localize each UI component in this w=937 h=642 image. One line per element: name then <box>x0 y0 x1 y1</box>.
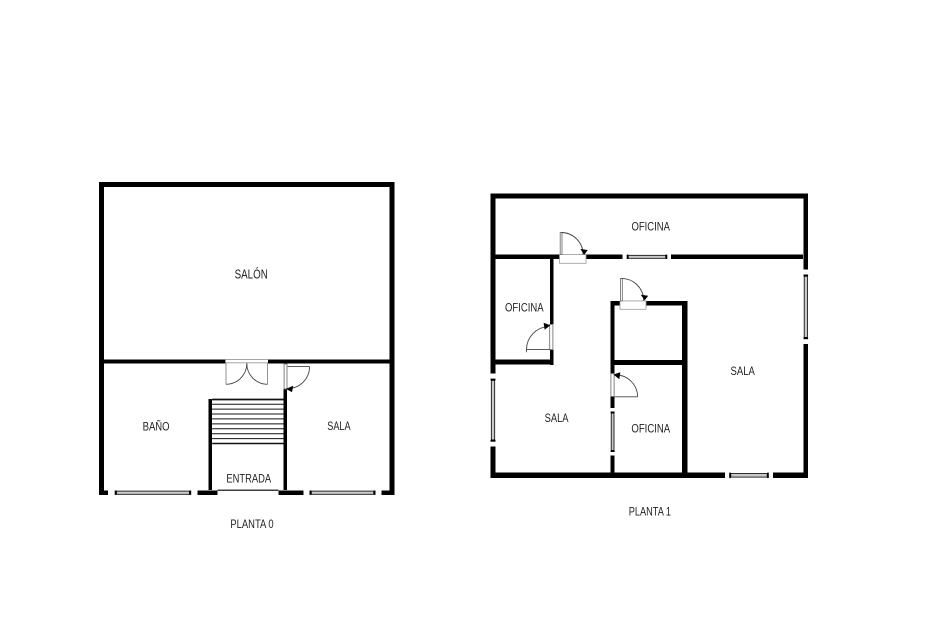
svg-text:OFICINA: OFICINA <box>632 219 670 233</box>
svg-text:SALÓN: SALÓN <box>235 266 268 281</box>
svg-text:SALA: SALA <box>327 419 350 433</box>
svg-text:OFICINA: OFICINA <box>505 301 544 315</box>
svg-text:SALA: SALA <box>545 411 569 425</box>
svg-text:ENTRADA: ENTRADA <box>226 474 271 486</box>
svg-text:OFICINA: OFICINA <box>631 422 670 436</box>
svg-text:PLANTA 1: PLANTA 1 <box>629 506 671 518</box>
svg-text:SALA: SALA <box>731 364 755 378</box>
svg-text:BAÑO: BAÑO <box>143 419 170 433</box>
svg-text:PLANTA 0: PLANTA 0 <box>230 519 273 531</box>
